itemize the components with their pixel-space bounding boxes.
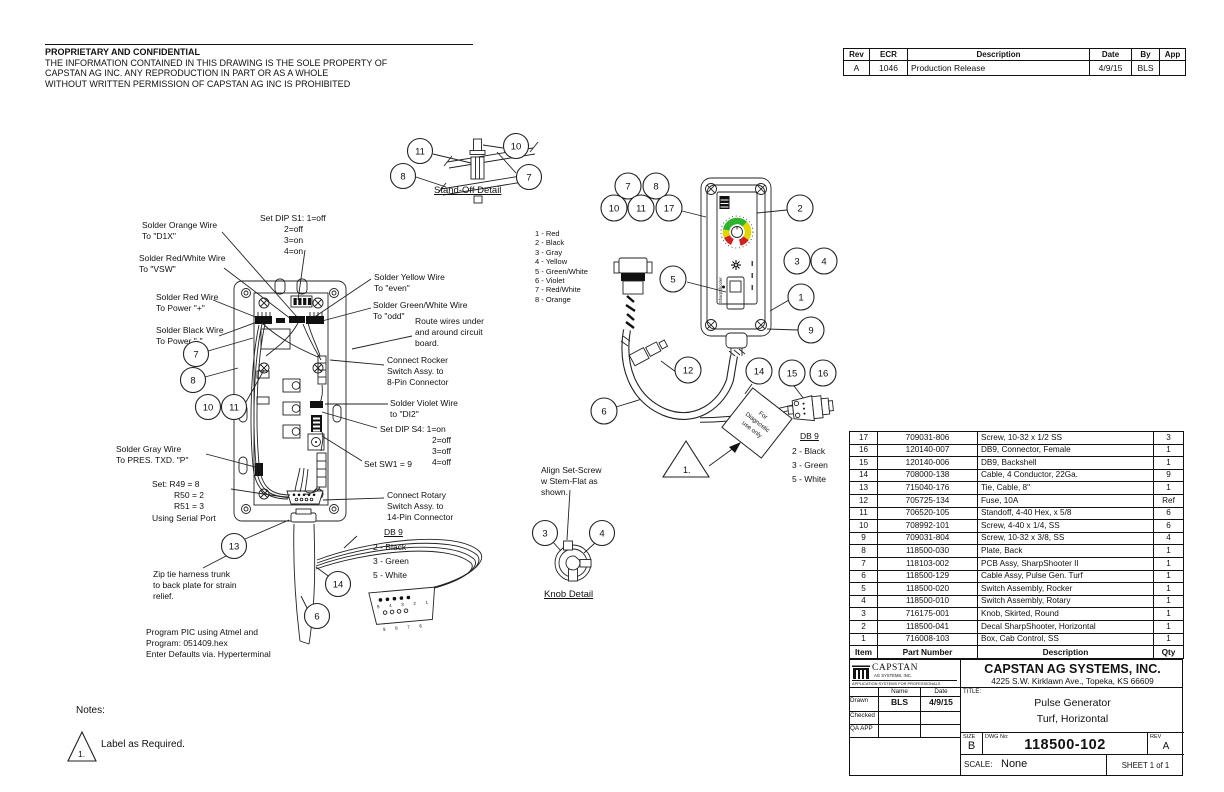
title-block: CAPSTAN AG SYSTEMS, INC. APPLICATION SYS…: [849, 659, 1183, 776]
list-item: 2 - Black: [373, 540, 409, 554]
db9-diagnostic-connector: [787, 394, 834, 424]
ann-solder-violet: Solder Violet Wire to "DI2": [390, 398, 458, 420]
ann-solder-black: Solder Black Wire To Power "-": [156, 325, 224, 347]
callout-8: 8: [181, 368, 206, 393]
svg-text:7: 7: [526, 173, 531, 184]
callout-10: 10: [196, 395, 221, 420]
note-flag-triangle: 1.: [663, 441, 741, 477]
svg-text:15: 15: [787, 369, 798, 380]
callout-17: 17: [656, 195, 682, 221]
sheet-cell: SHEET 1 of 1: [1106, 755, 1184, 776]
rev-value: A: [1148, 741, 1184, 752]
table-cell: 716175-001: [878, 608, 978, 621]
svg-text:10: 10: [511, 142, 522, 153]
table-row: 12705725-134Fuse, 10ARef: [850, 494, 1184, 507]
callout-1: 1: [788, 284, 814, 310]
table-cell: Standoff, 4-40 Hex, x 5/8: [978, 507, 1154, 520]
svg-text:3: 3: [794, 257, 799, 268]
callout-8b: 8: [391, 164, 416, 189]
table-header-cell: Part Number: [878, 646, 978, 659]
revision-table: RevECRDescriptionDateByApp A1046Producti…: [843, 48, 1186, 76]
fourteen-pin-connector: [317, 453, 326, 487]
dip-switch-s4: [311, 415, 322, 432]
table-row: 3716175-001Knob, Skirted, Round1: [850, 608, 1184, 621]
knob-stem: [569, 569, 578, 581]
name-column-header: Name: [879, 688, 921, 696]
control-box: SharpShooter: [701, 178, 771, 356]
standoff-screw-bottom: [474, 196, 482, 203]
dip-switch-s1: [291, 296, 312, 307]
table-cell: 12: [850, 494, 878, 507]
table-cell: 1: [1154, 583, 1184, 596]
table-cell: A: [844, 61, 870, 76]
company-block: CAPSTAN AG SYSTEMS, INC. 4225 S.W. Kirkl…: [961, 660, 1184, 688]
parts-list-header: ItemPart NumberDescriptionQty: [850, 646, 1184, 659]
ann-solder-yellow: Solder Yellow Wire To "even": [374, 272, 445, 294]
scale-label: SCALE:: [964, 760, 992, 769]
svg-text:11: 11: [229, 403, 239, 414]
capstan-logo-icon: [852, 662, 870, 680]
title-block-top: CAPSTAN AG SYSTEMS, INC. APPLICATION SYS…: [850, 660, 1182, 688]
callout-10b: 10: [504, 134, 529, 159]
standoff: [471, 157, 484, 179]
notes-label: Notes:: [76, 705, 105, 716]
table-row: 2118500-041Decal SharpShooter, Horizonta…: [850, 620, 1184, 633]
serial-port: [287, 491, 323, 504]
ann-align-set-screw: Align Set-Screw w Stem-Flat as shown.: [541, 465, 601, 498]
list-item: 2 - Black: [535, 238, 588, 247]
ann-route-wires: Route wires under and around circuit boa…: [415, 316, 484, 349]
standoff-detail-title: Stand-Off Detail: [434, 185, 501, 196]
ann-zip-tie: Zip tie harness trunk to back plate for …: [153, 569, 237, 602]
table-row: 16120140-007DB9, Connector, Female1: [850, 444, 1184, 457]
svg-text:16: 16: [818, 369, 829, 380]
company-name: CAPSTAN AG SYSTEMS, INC.: [961, 662, 1184, 676]
eight-pin-cable-connector: [614, 258, 652, 328]
parts-list-table: 17709031-806Screw, 10-32 x 1/2 SS3161201…: [849, 431, 1184, 659]
table-cell: 10: [850, 520, 878, 533]
logo-tagline: APPLICATION SYSTEMS FOR PROFESSIONALS: [852, 680, 957, 686]
table-cell: 5: [850, 583, 878, 596]
sheet-value: SHEET 1 of 1: [1107, 761, 1184, 770]
decal-brand-text: SharpShooter: [718, 277, 723, 303]
db9-connector-detail: 5 4 3 2 1 9 8 7 6: [369, 587, 438, 633]
svg-text:11: 11: [636, 204, 646, 215]
gauge-red-arc: [740, 238, 746, 242]
table-cell: 6: [850, 570, 878, 583]
di2-connector: [310, 401, 323, 408]
callout-10c: 10: [601, 195, 627, 221]
title-area: TITLE: Pulse Generator Turf, Horizontal …: [961, 688, 1184, 776]
table-cell: 4: [1154, 532, 1184, 545]
table-cell: 1: [1154, 633, 1184, 646]
date-column-header: Date: [921, 688, 961, 696]
list-item: 3 - Gray: [535, 248, 588, 257]
table-row: 15120140-006DB9, Backshell1: [850, 457, 1184, 470]
ann-program: Program PIC using Atmel and Program: 051…: [146, 627, 271, 660]
table-cell: 1: [1154, 557, 1184, 570]
callout-4b: 4: [590, 521, 615, 546]
table-cell: Screw, 4-40 x 1/4, SS: [978, 520, 1154, 533]
notice-body: THE INFORMATION CONTAINED IN THIS DRAWIN…: [45, 58, 473, 90]
list-item: 6 - Violet: [535, 276, 588, 285]
table-cell: 708000-138: [878, 469, 978, 482]
notes-triangle: 1.: [68, 732, 96, 761]
list-item: 5 - White: [792, 472, 828, 486]
ann-set-r-tail: Using Serial Port: [152, 513, 216, 524]
size-value: B: [961, 740, 982, 752]
drawn-name: BLS: [879, 697, 921, 711]
svg-text:8: 8: [400, 172, 405, 183]
table-cell: Tie, Cable, 8": [978, 482, 1154, 495]
table-cell: 706520-105: [878, 507, 978, 520]
table-cell: Plate, Back: [978, 545, 1154, 558]
list-item: 2 - Black: [792, 444, 828, 458]
db9-pin-numbers-bottom: 9 8 7 6: [383, 623, 426, 632]
callout-14: 14: [326, 572, 351, 597]
table-cell: 715040-176: [878, 482, 978, 495]
table-cell: PCB Assy, SharpShooter II: [978, 557, 1154, 570]
callout-11b: 11: [408, 139, 433, 164]
table-cell: 1: [1154, 620, 1184, 633]
callout-9: 9: [798, 317, 824, 343]
drawing-title-line2: Turf, Horizontal: [961, 713, 1184, 725]
svg-text:17: 17: [664, 204, 675, 215]
list-item: 5 - White: [373, 568, 409, 582]
callout-7b: 7: [517, 165, 542, 190]
notes-triangle-number: 1.: [78, 749, 85, 759]
svg-text:8: 8: [653, 182, 658, 193]
table-cell: 4/9/15: [1090, 61, 1132, 76]
table-row: 5118500-020Switch Assembly, Rocker1: [850, 583, 1184, 596]
dwg-number: 118500-102: [983, 737, 1147, 753]
callout-6: 6: [305, 604, 330, 629]
table-cell: Production Release: [908, 61, 1090, 76]
table-row: 7118103-002PCB Assy, SharpShooter II1: [850, 557, 1184, 570]
table-cell: Switch Assembly, Rocker: [978, 583, 1154, 596]
table-row: 11706520-105Standoff, 4-40 Hex, x 5/86: [850, 507, 1184, 520]
table-cell: 1: [1154, 570, 1184, 583]
svg-text:1: 1: [798, 293, 803, 304]
table-cell: Fuse, 10A: [978, 494, 1154, 507]
svg-text:3: 3: [542, 529, 547, 540]
table-cell: 118500-041: [878, 620, 978, 633]
svg-text:13: 13: [229, 542, 240, 553]
table-cell: Cable, 4 Conductor, 22Ga.: [978, 469, 1154, 482]
svg-text:7: 7: [193, 350, 198, 361]
logo-name: CAPSTAN: [872, 663, 918, 673]
drawing-title-line1: Pulse Generator: [961, 697, 1184, 709]
knob-detail-drawing: [555, 541, 591, 581]
size-cell: SIZE B: [961, 733, 983, 754]
gauge-yellow-arc: [745, 224, 748, 238]
svg-text:5: 5: [670, 275, 675, 286]
list-item: 5 - Green/White: [535, 267, 588, 276]
table-row: 9709031-804Screw, 10-32 x 3/8, SS4: [850, 532, 1184, 545]
table-row: 8118500-030Plate, Back1: [850, 545, 1184, 558]
svg-text:12: 12: [683, 366, 694, 377]
solder-terminals: [255, 312, 324, 324]
table-cell: 3: [850, 608, 878, 621]
ann-solder-red: Solder Red Wire To Power "+": [156, 292, 218, 314]
led-components: [283, 379, 300, 438]
db9-list-left: 2 - Black3 - Green5 - White: [373, 540, 409, 582]
table-cell: 118500-030: [878, 545, 978, 558]
callout-3: 3: [784, 248, 810, 274]
gauge-red-arc-left: [727, 237, 732, 242]
svg-text:9: 9: [808, 326, 813, 337]
table-cell: 1: [850, 633, 878, 646]
table-cell: Switch Assembly, Rotary: [978, 595, 1154, 608]
svg-text:4: 4: [599, 529, 604, 540]
svg-text:4: 4: [821, 257, 826, 268]
table-cell: 14: [850, 469, 878, 482]
logo-subtitle: AG SYSTEMS, INC.: [874, 673, 912, 678]
table-cell: 709031-806: [878, 432, 978, 445]
list-item: 3 - Green: [792, 458, 828, 472]
proprietary-notice: PROPRIETARY AND CONFIDENTIAL THE INFORMA…: [45, 44, 473, 89]
table-cell: Ref: [1154, 494, 1184, 507]
knob-arm: [580, 560, 591, 568]
table-row: 10708992-101Screw, 4-40 x 1/4, SS6: [850, 520, 1184, 533]
table-cell: 118500-129: [878, 570, 978, 583]
ann-solder-red-white: Solder Red/White Wire To "VSW": [139, 253, 225, 275]
arrowhead: [729, 442, 741, 453]
qa-label: QA APP: [850, 725, 879, 737]
table-cell: 709031-804: [878, 532, 978, 545]
svg-text:7: 7: [625, 182, 630, 193]
box-cable-exit: [726, 333, 747, 356]
table-cell: BLS: [1132, 61, 1160, 76]
company-logo: CAPSTAN AG SYSTEMS, INC. APPLICATION SYS…: [850, 660, 961, 688]
table-cell: 118500-010: [878, 595, 978, 608]
table-row: 1716008-103Box, Cab Control, SS1: [850, 633, 1184, 646]
table-cell: 1: [1154, 444, 1184, 457]
callout-3b: 3: [533, 521, 558, 546]
table-cell: 708992-101: [878, 520, 978, 533]
svg-text:2: 2: [797, 204, 802, 215]
callout-6b: 6: [591, 398, 617, 424]
size-dwg-rev-row: SIZE B DWG No: 118500-102 REV A: [961, 733, 1184, 755]
list-item: 4 - Yellow: [535, 257, 588, 266]
table-header-cell: Description: [978, 646, 1154, 659]
table-cell: 1: [1154, 482, 1184, 495]
ann-connect-rocker: Connect Rocker Switch Assy. to 8-Pin Con…: [387, 355, 448, 388]
scale-value: None: [1001, 758, 1027, 770]
table-cell: 17: [850, 432, 878, 445]
table-cell: 118103-002: [878, 557, 978, 570]
table-cell: 716008-103: [878, 633, 978, 646]
list-item: 1 - Red: [535, 229, 588, 238]
table-cell: 705725-134: [878, 494, 978, 507]
callout-13: 13: [222, 534, 247, 559]
callout-4: 4: [811, 248, 837, 274]
table-cell: 1: [1154, 457, 1184, 470]
table-header-cell: Qty: [1154, 646, 1184, 659]
parts-list-body: 17709031-806Screw, 10-32 x 1/2 SS3161201…: [850, 432, 1184, 646]
ann-set-r-head: Set: R49 = 8: [152, 479, 200, 490]
ann-dip-s1-head: Set DIP S1: 1=off: [260, 213, 326, 224]
ann-set-r-mid: R50 = 2 R51 = 3: [174, 490, 204, 512]
table-cell: 6: [1154, 507, 1184, 520]
scale-row: SCALE: None SHEET 1 of 1: [961, 755, 1184, 776]
table-row: 13715040-176Tie, Cable, 8"1: [850, 482, 1184, 495]
table-cell: 1: [1154, 608, 1184, 621]
table-cell: 2: [850, 620, 878, 633]
gauge: [721, 216, 753, 248]
table-cell: 6: [1154, 520, 1184, 533]
table-cell: 1: [1154, 545, 1184, 558]
table-cell: 7: [850, 557, 878, 570]
table-cell: Cable Assy, Pulse Gen. Turf: [978, 570, 1154, 583]
table-row: 6118500-129Cable Assy, Pulse Gen. Turf1: [850, 570, 1184, 583]
table-cell: 1046: [870, 61, 908, 76]
table-cell: Decal SharpShooter, Horizontal: [978, 620, 1154, 633]
list-item: 3 - Green: [373, 554, 409, 568]
table-header-cell: ECR: [870, 49, 908, 61]
table-header-cell: App: [1160, 49, 1186, 61]
table-cell: DB9, Connector, Female: [978, 444, 1154, 457]
list-item: 8 - Orange: [535, 295, 588, 304]
note-1-text: Label as Required.: [101, 739, 185, 750]
drawn-date: 4/9/15: [921, 697, 961, 711]
table-cell: 13: [850, 482, 878, 495]
rev-label: REV: [1150, 734, 1161, 740]
table-cell: 15: [850, 457, 878, 470]
note-flag-number: 1.: [683, 465, 691, 475]
checked-label: Checked: [850, 712, 879, 724]
table-header-cell: By: [1132, 49, 1160, 61]
table-header-cell: Date: [1090, 49, 1132, 61]
ann-dip-s4-head: Set DIP S4: 1=on: [380, 424, 446, 435]
table-header-cell: Rev: [844, 49, 870, 61]
callout-16: 16: [810, 360, 836, 386]
brightness-icon: [731, 260, 741, 270]
table-cell: [1160, 61, 1186, 76]
barcode-logo: [720, 196, 730, 209]
dwg-cell: DWG No: 118500-102: [983, 733, 1148, 754]
wire-color-list: 1 - Red2 - Black3 - Gray4 - Yellow5 - Gr…: [535, 229, 588, 304]
knob-set-screw: [564, 541, 573, 550]
svg-text:6: 6: [601, 407, 606, 418]
callout-2: 2: [787, 195, 813, 221]
signature-block: Name Date Drawn BLS 4/9/15 Checked QA AP…: [850, 688, 961, 776]
table-cell: Screw, 10-32 x 3/8, SS: [978, 532, 1154, 545]
table-cell: 16: [850, 444, 878, 457]
table-header-cell: Description: [908, 49, 1090, 61]
callout-12: 12: [675, 357, 701, 383]
callout-11: 11: [222, 395, 247, 420]
svg-text:6: 6: [314, 612, 319, 623]
callout-balloons: 7 8 10 11 13 14 6 11 10 8 7 7 8 10 11 17…: [181, 134, 838, 629]
table-cell: 9: [1154, 469, 1184, 482]
table-cell: 4: [850, 595, 878, 608]
knob-detail-title: Knob Detail: [544, 589, 593, 600]
table-cell: 8: [850, 545, 878, 558]
ann-dip-s1-rest: 2=off 3=on 4=on: [284, 224, 303, 257]
table-cell: 3: [1154, 432, 1184, 445]
table-cell: Knob, Skirted, Round: [978, 608, 1154, 621]
ann-connect-rotary: Connect Rotary Switch Assy. to 14-Pin Co…: [387, 490, 453, 523]
svg-text:8: 8: [190, 376, 195, 387]
drawing-sheet: 5 4 3 2 1 9 8 7 6: [0, 0, 1224, 792]
callout-15: 15: [779, 360, 805, 386]
table-row: 4118500-010Switch Assembly, Rotary1: [850, 595, 1184, 608]
notice-title: PROPRIETARY AND CONFIDENTIAL: [45, 47, 473, 58]
callout-11c: 11: [628, 195, 654, 221]
drawn-label: Drawn: [850, 697, 879, 711]
revision-table-header: RevECRDescriptionDateByApp: [844, 49, 1186, 61]
ann-solder-gray: Solder Gray Wire To PRES. TXD. "P": [116, 444, 188, 466]
table-row: 14708000-138Cable, 4 Conductor, 22Ga.9: [850, 469, 1184, 482]
table-header-cell: Item: [850, 646, 878, 659]
revision-table-body: A1046Production Release4/9/15BLS: [844, 61, 1186, 76]
db9-header-right: DB 9: [800, 431, 819, 441]
table-cell: DB9, Backshell: [978, 457, 1154, 470]
svg-text:14: 14: [333, 580, 344, 591]
table-cell: 1: [1154, 595, 1184, 608]
knob-hub-flat: [566, 556, 580, 570]
table-row: 17709031-806Screw, 10-32 x 1/2 SS3: [850, 432, 1184, 445]
table-cell: 9: [850, 532, 878, 545]
svg-text:11: 11: [415, 147, 425, 158]
ann-solder-orange: Solder Orange Wire To "D1X": [142, 220, 217, 242]
company-address: 4225 S.W. Kirklawn Ave., Topeka, KS 6660…: [961, 676, 1184, 686]
callout-14b: 14: [746, 358, 772, 384]
table-row: A1046Production Release4/9/15BLS: [844, 61, 1186, 76]
table-cell: 120140-006: [878, 457, 978, 470]
gauge-yellow-arc-left: [726, 230, 727, 237]
svg-text:10: 10: [203, 403, 214, 414]
db9-list-right: 2 - Black3 - Green5 - White: [792, 444, 828, 486]
ann-set-sw1: Set SW1 = 9: [364, 459, 412, 470]
svg-text:14: 14: [754, 367, 765, 378]
rev-cell: REV A: [1148, 733, 1184, 754]
svg-text:10: 10: [609, 204, 620, 215]
table-cell: 118500-020: [878, 583, 978, 596]
table-cell: 11: [850, 507, 878, 520]
db9-header-left: DB 9: [384, 527, 403, 537]
ann-dip-s4-rest: 2=off 3=off 4=off: [432, 435, 451, 468]
title-label: TITLE:: [963, 689, 981, 695]
table-cell: 120140-007: [878, 444, 978, 457]
list-item: 7 - Red/White: [535, 285, 588, 294]
callout-5: 5: [660, 266, 686, 292]
table-cell: Screw, 10-32 x 1/2 SS: [978, 432, 1154, 445]
drawing-title-cell: TITLE: Pulse Generator Turf, Horizontal: [961, 688, 1184, 733]
table-cell: Box, Cab Control, SS: [978, 633, 1154, 646]
